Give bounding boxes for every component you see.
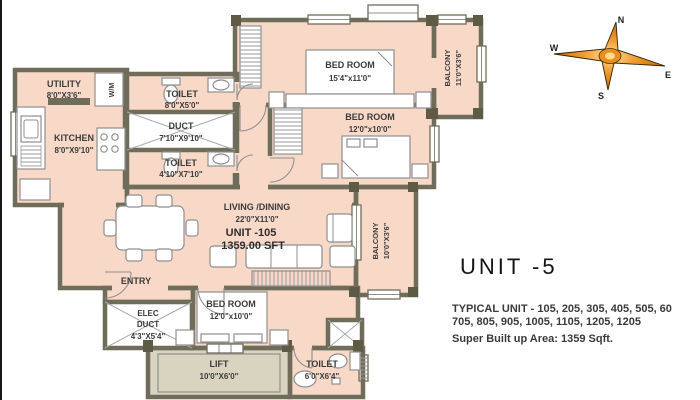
master-bedroom-label: BED ROOM bbox=[325, 60, 375, 70]
unit-area-label: 1359.00 SFT bbox=[221, 240, 285, 252]
compass-w: W bbox=[550, 43, 559, 53]
elec-duct-label-2: DUCT bbox=[137, 320, 159, 329]
compass-hub-center bbox=[605, 53, 615, 60]
toilet-mid-size: 4'10"X7'10" bbox=[159, 170, 203, 179]
compass-e: E bbox=[665, 70, 671, 80]
master-bedroom-size: 15'4"x11'0" bbox=[329, 74, 371, 83]
typical-unit-line-2: 705, 805, 905, 1005, 1105, 1205, 1205 bbox=[452, 316, 672, 329]
lift-size: 10'0"X6'0" bbox=[200, 372, 239, 381]
entry-label: ENTRY bbox=[121, 276, 151, 286]
living-dining-size: 22'0"X11'0" bbox=[236, 215, 279, 224]
duct-size: 7'10"X9'10" bbox=[159, 134, 203, 143]
balcony-mid-label: BALCONY bbox=[371, 222, 380, 259]
elec-duct-size: 4'3"X5'4" bbox=[131, 332, 166, 341]
balcony-top-size: 11'0"X3'6" bbox=[454, 49, 463, 86]
balcony-top-label: BALCONY bbox=[443, 49, 452, 86]
mid-bedroom-size: 12'0"x10'0" bbox=[349, 125, 392, 134]
mid-bedroom-label: BED ROOM bbox=[345, 112, 395, 122]
typical-unit-block: TYPICAL UNIT - 105, 205, 305, 405, 505, … bbox=[452, 303, 672, 346]
kitchen-size: 8'0"X9'10" bbox=[55, 146, 94, 155]
super-built-up-area: Super Built up Area: 1359 Sqft. bbox=[452, 333, 672, 346]
balcony-mid-size: 10'0"X3'6" bbox=[382, 222, 391, 259]
kitchen-label: KITCHEN bbox=[54, 133, 94, 143]
washing-machine-label: W/M bbox=[109, 83, 116, 98]
toilet-bottom-size: 6'0"X6'4" bbox=[305, 372, 340, 381]
toilet-mid-label: TOILET bbox=[165, 158, 197, 168]
elec-duct-label-1: ELEC bbox=[137, 309, 159, 318]
duct-label: DUCT bbox=[169, 121, 194, 131]
bottom-bedroom-size: 12'0"x10'0" bbox=[210, 312, 253, 321]
toilet-top-size: 8'0"X5'0" bbox=[165, 101, 200, 110]
compass-icon: N W E S bbox=[548, 8, 676, 102]
typical-unit-line-1: TYPICAL UNIT - 105, 205, 305, 405, 505, … bbox=[452, 303, 672, 316]
compass-n: N bbox=[618, 15, 625, 25]
toilet-top-label: TOILET bbox=[166, 89, 198, 99]
living-dining-label: LIVING /DINING bbox=[224, 202, 291, 212]
unit-number-label: UNIT -105 bbox=[226, 227, 277, 239]
lift-label: LIFT bbox=[210, 359, 229, 369]
toilet-bottom-label: TOILET bbox=[306, 359, 338, 369]
unit-title: UNIT -5 bbox=[460, 254, 558, 280]
floor-plan: UTILITY 8'0"X3'6" W/M KITCHEN 8'0"X9'10"… bbox=[0, 0, 500, 400]
utility-label: UTILITY bbox=[47, 79, 81, 89]
utility-size: 8'0"X3'6" bbox=[47, 91, 82, 100]
compass-s: S bbox=[598, 91, 604, 101]
bottom-bedroom-label: BED ROOM bbox=[206, 299, 256, 309]
